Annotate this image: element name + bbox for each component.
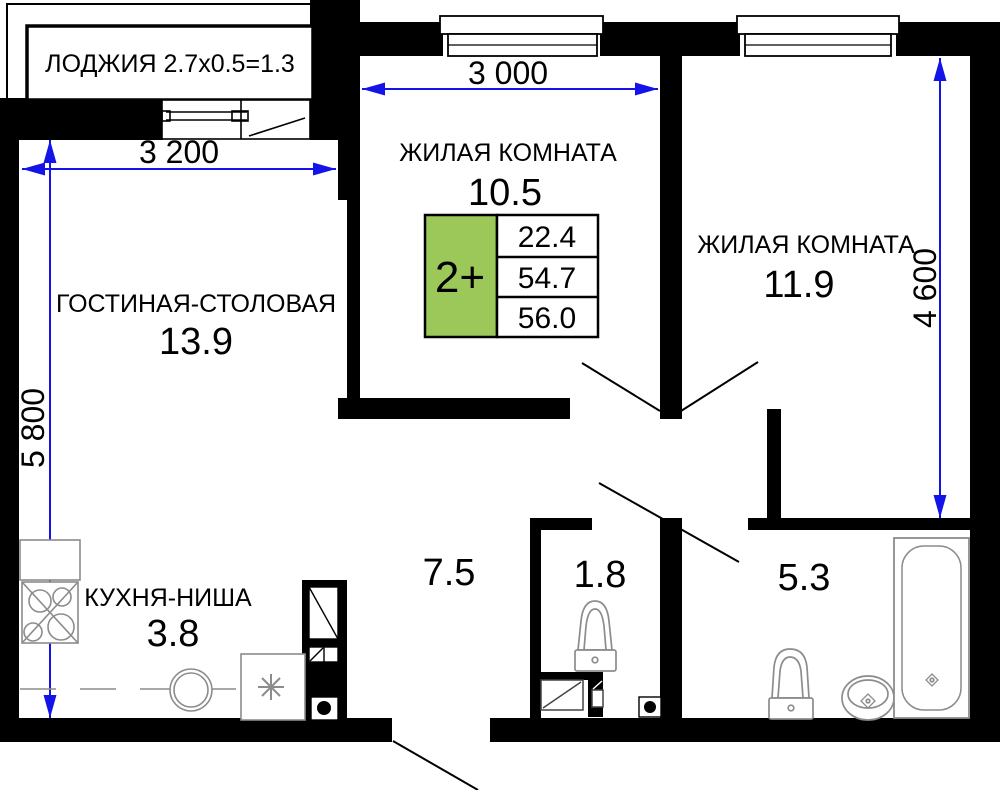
info-box-value-3: 56.0 bbox=[518, 302, 576, 335]
door-room2-swing bbox=[681, 362, 758, 411]
room-living1-area: 10.5 bbox=[468, 172, 542, 214]
floor-plan-page: ЛОДЖИЯ 2.7x0.5=1.3 bbox=[0, 0, 1000, 790]
wall-right-outer bbox=[970, 22, 1000, 740]
room-hallway-area: 7.5 bbox=[423, 552, 476, 594]
kitchen-stove bbox=[241, 654, 305, 720]
room-livingdining-name: ГОСТИНАЯ-СТОЛОВАЯ bbox=[56, 290, 336, 318]
kitchen-sink bbox=[22, 582, 78, 643]
info-box-value-1: 22.4 bbox=[518, 221, 576, 254]
room-kitchen-name: КУХНЯ-НИША bbox=[84, 584, 252, 612]
loggia-label: ЛОДЖИЯ 2.7x0.5=1.3 bbox=[45, 50, 295, 78]
floor-plan: ЛОДЖИЯ 2.7x0.5=1.3 bbox=[0, 0, 1000, 790]
toilet-wc bbox=[575, 601, 616, 671]
wall-stub bbox=[767, 409, 781, 530]
wall-wc-duct-top bbox=[540, 672, 588, 680]
wall-bathroom-top bbox=[748, 518, 970, 530]
shaft-drain-dot bbox=[317, 701, 331, 715]
wall-wc-right bbox=[660, 518, 682, 742]
dim-3000-label: 3 000 bbox=[468, 55, 548, 91]
bathroom-sink bbox=[842, 676, 894, 720]
wc-fixtures bbox=[541, 601, 661, 717]
wall-top-a bbox=[360, 22, 443, 56]
room-livingdining-area: 13.9 bbox=[159, 321, 233, 363]
info-box-label: 2+ bbox=[435, 253, 485, 302]
wall-wc-left bbox=[530, 518, 541, 742]
door-room1-swing bbox=[582, 363, 660, 411]
kitchen-table bbox=[170, 669, 212, 711]
wall-bottom-right bbox=[490, 718, 1000, 742]
toilet-bathroom bbox=[769, 649, 813, 719]
room-bathroom-area: 5.3 bbox=[778, 557, 831, 599]
room-living2-area: 11.9 bbox=[763, 264, 834, 306]
wall-center-left-lower bbox=[347, 200, 360, 419]
room-living2-name: ЖИЛАЯ КОМНАТА bbox=[697, 231, 915, 259]
dim-3200-label: 3 200 bbox=[139, 134, 219, 170]
wall-wc-top bbox=[530, 518, 592, 530]
wall-room1-bottom bbox=[338, 398, 570, 419]
dim-5800-label: 5 800 bbox=[15, 388, 51, 468]
info-box-value-2: 54.7 bbox=[518, 262, 576, 295]
door-entrance-swing bbox=[393, 741, 478, 790]
kitchen-counter-top bbox=[20, 540, 80, 580]
room-kitchen-area: 3.8 bbox=[147, 613, 200, 655]
shaft-insets bbox=[309, 587, 338, 720]
room-living1-name: ЖИЛАЯ КОМНАТА bbox=[399, 139, 617, 167]
wall-center-vertical bbox=[660, 22, 682, 419]
dim-4600-label: 4 600 bbox=[907, 248, 943, 328]
bathtub bbox=[894, 538, 969, 718]
wc-drain-box bbox=[639, 697, 661, 717]
window-room1 bbox=[440, 16, 603, 56]
info-box: 2+ 22.4 54.7 56.0 bbox=[425, 215, 598, 337]
wall-center-left-upper bbox=[338, 112, 360, 200]
room-wc-area: 1.8 bbox=[574, 554, 627, 596]
window-room2 bbox=[737, 16, 899, 56]
